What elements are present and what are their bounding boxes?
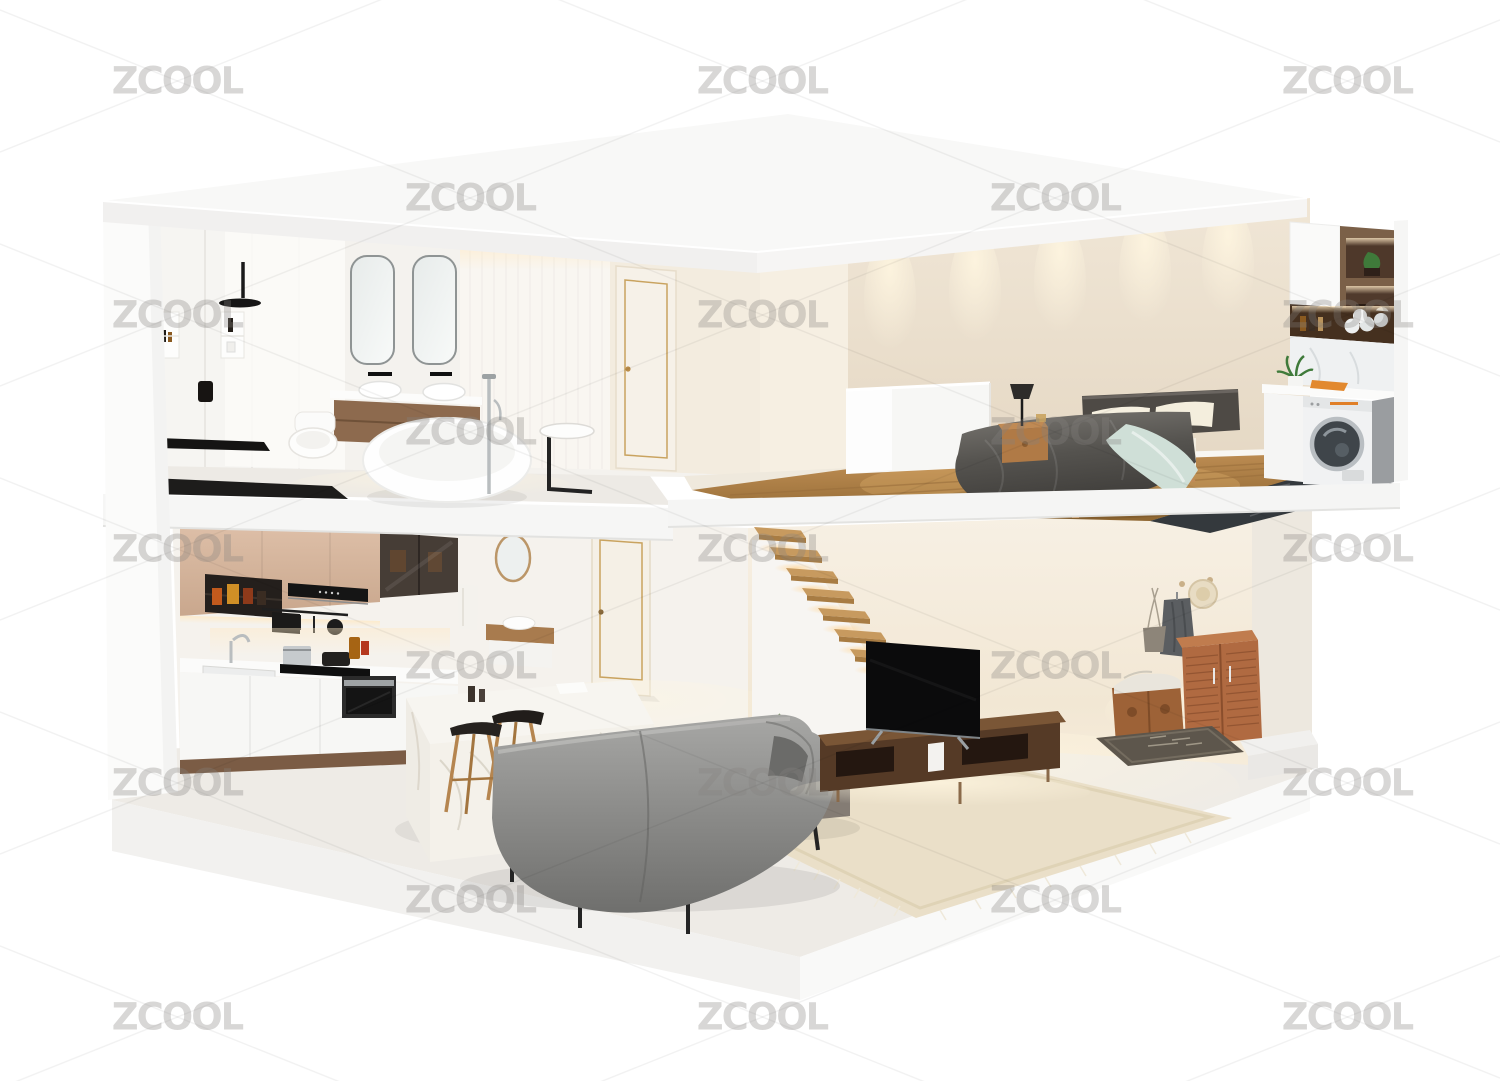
apartment-cutaway-render: ZCOOLZCOOLZCOOLZCOOLZCOOLZCOOLZCOOLZCOOL…: [0, 0, 1500, 1081]
bedroom-hall-wall: [760, 252, 848, 476]
glass-upper-cabinet: [380, 532, 458, 598]
book: [928, 742, 944, 772]
round-mirror: [496, 535, 530, 581]
bottle: [1318, 317, 1323, 331]
island-tray: [556, 682, 588, 694]
freestanding-bathtub: [363, 418, 531, 508]
shower-niche: [221, 312, 244, 358]
vessel-sink: [359, 382, 401, 399]
wall-hook: [1179, 581, 1185, 587]
door-handle: [598, 609, 603, 614]
control-strip: [1330, 402, 1358, 405]
upper-bathroom-door: [616, 266, 676, 471]
rolled-towel: [1374, 313, 1388, 327]
rolled-towel: [1353, 309, 1367, 323]
washer-door: [1312, 419, 1362, 469]
bottle: [1300, 316, 1306, 331]
washing-machine: [1303, 396, 1394, 488]
laundry-side-panel: [1394, 220, 1408, 482]
shower-valve: [198, 381, 213, 402]
sofa: [460, 715, 840, 934]
vessel-sink: [503, 617, 535, 630]
powder-cabinet: [489, 640, 552, 668]
lower-floor: [112, 505, 1318, 1000]
washer-filter: [1342, 470, 1364, 481]
toilet: [289, 412, 337, 458]
straw-hat: [1189, 580, 1217, 608]
mirror: [413, 256, 456, 364]
wall-faucet: [430, 372, 452, 376]
open-spice-shelf: [205, 574, 282, 618]
scene: [0, 0, 1500, 1081]
built-in-oven: [342, 676, 396, 718]
counter-glow: [210, 628, 450, 656]
mirror: [351, 256, 394, 364]
rain-shower-head: [219, 299, 261, 308]
laundry-base-cabinet: [1264, 393, 1303, 482]
powder-room-door: [584, 526, 660, 702]
vessel-sink: [423, 384, 465, 401]
nightstand-books: [1036, 414, 1046, 422]
hand-towel: [458, 584, 478, 630]
door-handle: [625, 366, 630, 371]
tv-screen: [866, 641, 980, 738]
laundry-tall-cabinet: [1290, 222, 1340, 308]
wall-faucet: [368, 372, 392, 376]
pepper-grinder: [468, 686, 475, 702]
bottle: [1309, 314, 1315, 331]
